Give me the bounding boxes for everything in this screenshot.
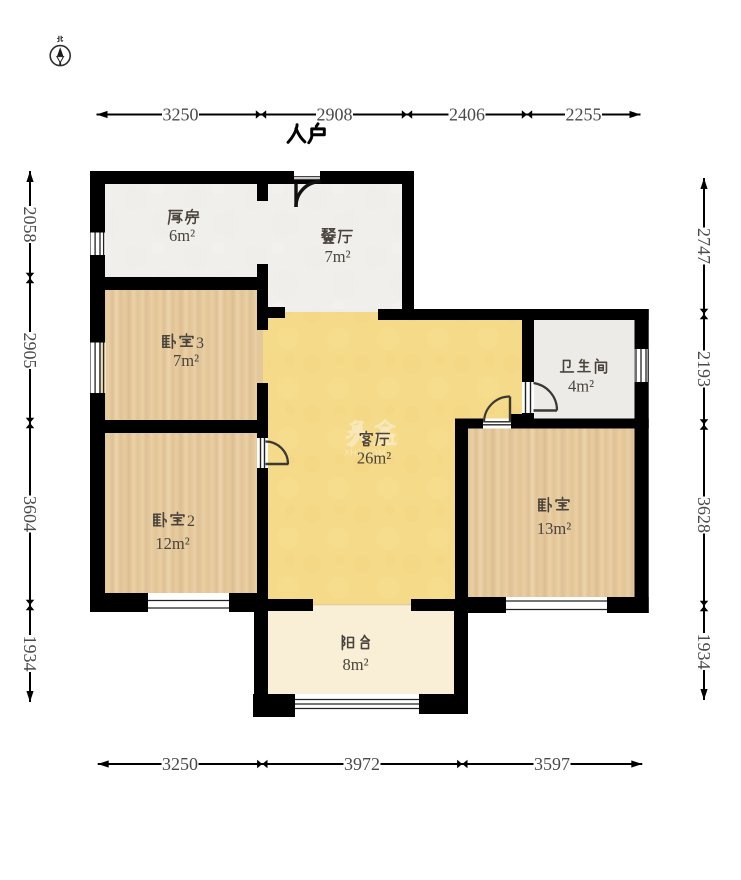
- svg-text:3: 3: [196, 335, 204, 352]
- svg-text:13m²: 13m²: [537, 519, 571, 538]
- svg-text:3972: 3972: [344, 754, 380, 774]
- svg-text:1934: 1934: [20, 636, 40, 672]
- svg-text:2: 2: [187, 513, 195, 530]
- svg-text:7m²: 7m²: [173, 351, 199, 370]
- svg-text:12m²: 12m²: [155, 534, 189, 553]
- svg-text:3604: 3604: [20, 496, 40, 532]
- svg-text:3250: 3250: [163, 105, 199, 125]
- svg-text:26m²: 26m²: [357, 449, 391, 468]
- svg-text:2908: 2908: [317, 105, 353, 125]
- svg-text:2193: 2193: [694, 351, 714, 387]
- svg-text:3250: 3250: [162, 754, 198, 774]
- svg-text:2058: 2058: [20, 207, 40, 243]
- svg-text:2905: 2905: [20, 333, 40, 369]
- svg-text:1934: 1934: [694, 634, 714, 670]
- svg-text:2747: 2747: [694, 228, 714, 264]
- svg-text:4m²: 4m²: [568, 377, 594, 396]
- svg-text:3628: 3628: [694, 497, 714, 533]
- svg-text:3597: 3597: [534, 754, 570, 774]
- svg-text:2255: 2255: [566, 105, 602, 125]
- svg-text:7m²: 7m²: [324, 247, 350, 266]
- svg-text:8m²: 8m²: [342, 655, 368, 674]
- svg-text:2406: 2406: [449, 105, 485, 125]
- svg-text:6m²: 6m²: [169, 226, 195, 245]
